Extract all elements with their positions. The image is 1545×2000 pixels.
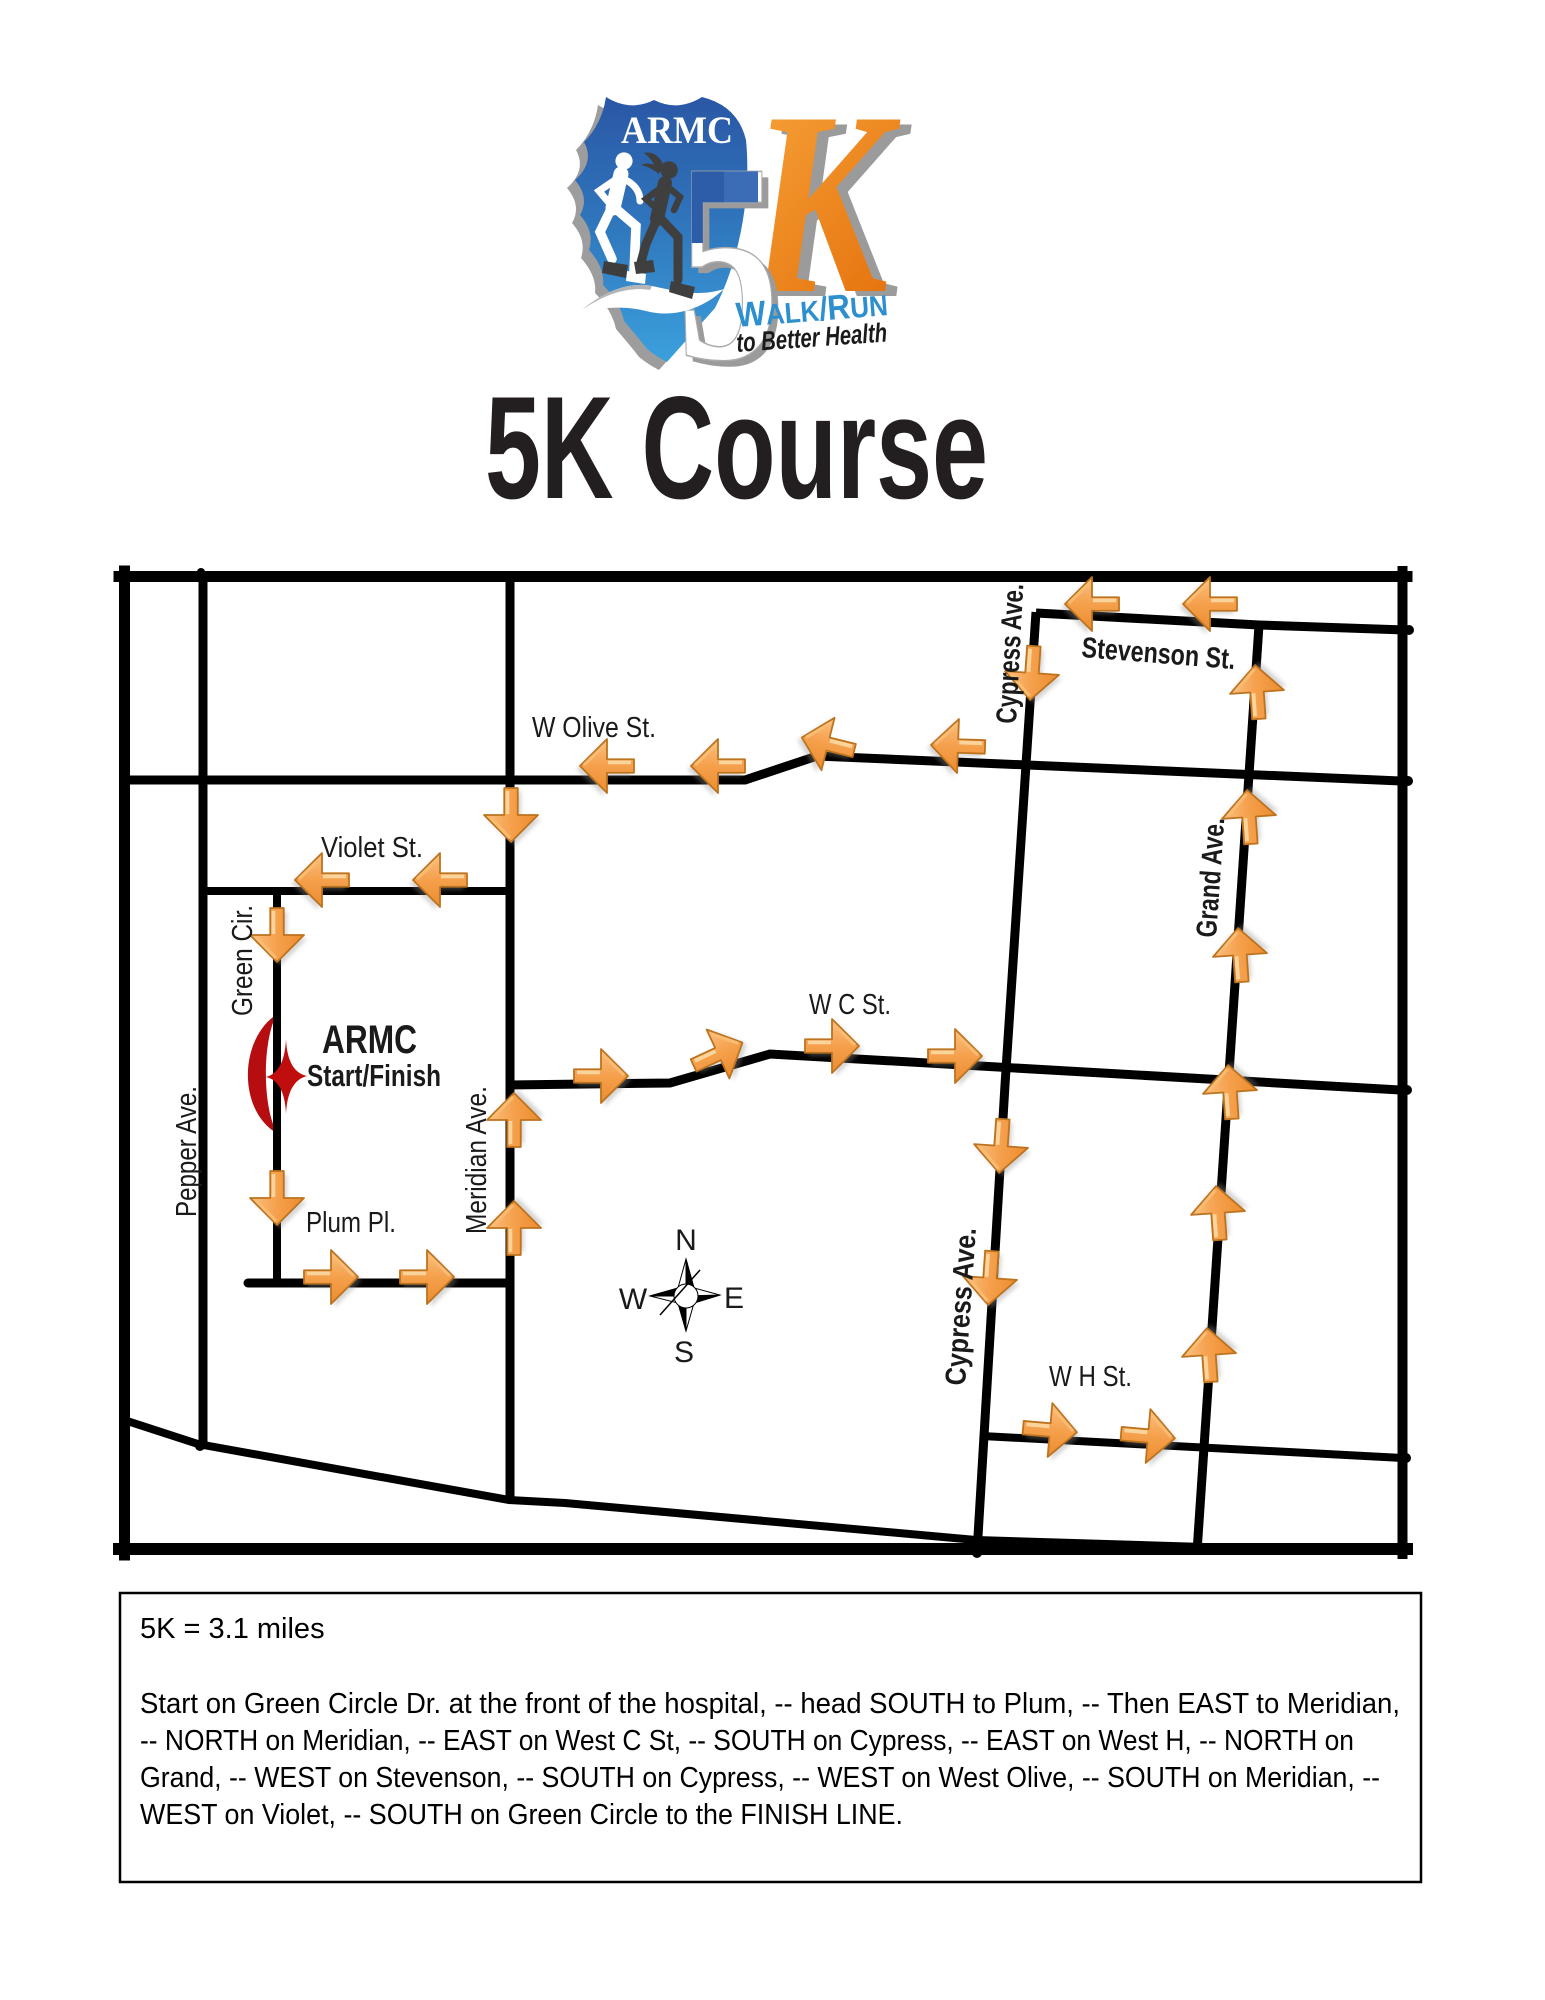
svg-text:WEST on Violet, -- SOUTH on Gr: WEST on Violet, -- SOUTH on Green Circle… (140, 1799, 903, 1831)
svg-text:Grand, -- WEST on Stevenson, -: Grand, -- WEST on Stevenson, -- SOUTH on… (140, 1762, 1380, 1794)
svg-text:S: S (674, 1336, 694, 1369)
svg-text:Violet St.: Violet St. (321, 832, 423, 864)
svg-text:W Olive St.: W Olive St. (532, 712, 656, 744)
svg-text:Pepper Ave.: Pepper Ave. (171, 1086, 203, 1217)
svg-text:W: W (619, 1283, 648, 1316)
svg-text:W H St.: W H St. (1049, 1361, 1132, 1393)
svg-text:Start/Finish: Start/Finish (307, 1058, 441, 1093)
svg-text:Green Cir.: Green Cir. (227, 905, 259, 1016)
svg-text:Cypress Ave.: Cypress Ave. (991, 583, 1030, 724)
svg-text:Grand Ave.: Grand Ave. (1191, 817, 1231, 939)
svg-text:ARMC: ARMC (322, 1018, 417, 1062)
svg-text:N: N (675, 1224, 697, 1257)
svg-text:Plum Pl.: Plum Pl. (306, 1207, 396, 1239)
svg-text:W C St.: W C St. (809, 989, 891, 1021)
svg-text:Cypress Ave.: Cypress Ave. (940, 1227, 983, 1387)
svg-text:Stevenson St.: Stevenson St. (1080, 632, 1236, 676)
svg-text:5K Course: 5K Course (485, 366, 988, 529)
svg-text:-- NORTH on Meridian, -- EAST: -- NORTH on Meridian, -- EAST on West C … (140, 1725, 1354, 1757)
svg-text:5K = 3.1 miles: 5K = 3.1 miles (140, 1613, 325, 1645)
svg-text:E: E (724, 1282, 744, 1315)
svg-text:Meridian Ave.: Meridian Ave. (461, 1086, 493, 1234)
svg-text:Start on Green Circle Dr. at t: Start on Green Circle Dr. at the front o… (140, 1688, 1400, 1720)
